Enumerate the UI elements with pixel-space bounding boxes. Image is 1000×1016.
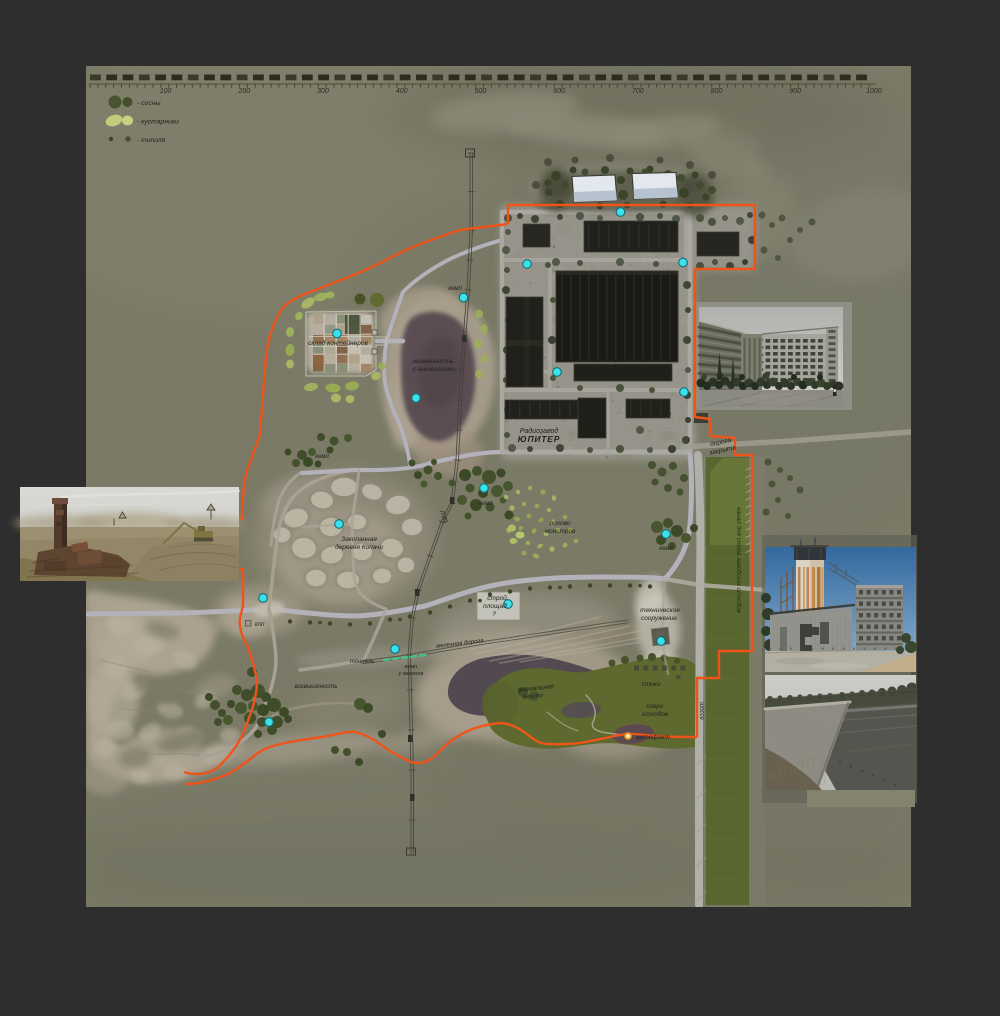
svg-text:шоссе: шоссе xyxy=(698,702,704,720)
svg-text:логово: логово xyxy=(549,520,571,527)
svg-text:400: 400 xyxy=(396,88,408,95)
svg-text:800: 800 xyxy=(711,88,723,95)
svg-text:- тополя: - тополя xyxy=(137,137,166,144)
svg-text:кемп: кемп xyxy=(405,664,417,670)
svg-text:200: 200 xyxy=(237,88,250,95)
svg-text:Закопанная: Закопанная xyxy=(341,536,377,543)
svg-text:озеро: озеро xyxy=(646,703,664,710)
svg-text:700: 700 xyxy=(632,88,644,95)
svg-text:стоки: стоки xyxy=(642,681,661,688)
svg-text:у вагонов: у вагонов xyxy=(398,671,424,677)
svg-text:монстров: монстров xyxy=(545,528,576,535)
svg-text:тоннель: тоннель xyxy=(350,659,375,665)
svg-text:кпп: кпп xyxy=(255,622,265,628)
svg-text:600: 600 xyxy=(553,88,565,95)
svg-text:сооружение: сооружение xyxy=(641,615,677,622)
svg-text:?: ? xyxy=(492,611,496,618)
svg-text:1000: 1000 xyxy=(866,88,882,95)
svg-text:500: 500 xyxy=(475,88,487,95)
svg-text:отходов: отходов xyxy=(642,710,669,718)
svg-text:- кустарники: - кустарники xyxy=(137,119,179,126)
svg-text:кемп: кемп xyxy=(479,501,493,507)
svg-text:с аномалиями: с аномалиями xyxy=(413,366,456,373)
svg-text:артефакт: артефакт xyxy=(636,734,670,741)
svg-text:склад контейнеров: склад контейнеров xyxy=(308,339,368,347)
svg-text:строй: строй xyxy=(487,594,507,602)
svg-text:100: 100 xyxy=(160,88,172,95)
svg-text:возвышеность: возвышеность xyxy=(295,684,338,690)
svg-text:900: 900 xyxy=(789,88,801,95)
svg-text:канал для стока заводских отхо: канал для стока заводских отходов xyxy=(735,507,742,613)
svg-text:- сосны: - сосны xyxy=(137,100,160,107)
svg-text:площад: площад xyxy=(483,602,507,610)
svg-text:300: 300 xyxy=(317,88,329,95)
svg-text:низменность: низменность xyxy=(412,358,454,365)
svg-text:кемп: кемп xyxy=(448,286,462,292)
svg-text:деревня Копачи: деревня Копачи xyxy=(335,543,383,551)
svg-text:кемп: кемп xyxy=(659,546,673,552)
svg-text:кемп: кемп xyxy=(315,454,329,460)
svg-text:техническое: техническое xyxy=(640,607,680,614)
svg-text:ЮПИТЕР: ЮПИТЕР xyxy=(518,434,560,444)
